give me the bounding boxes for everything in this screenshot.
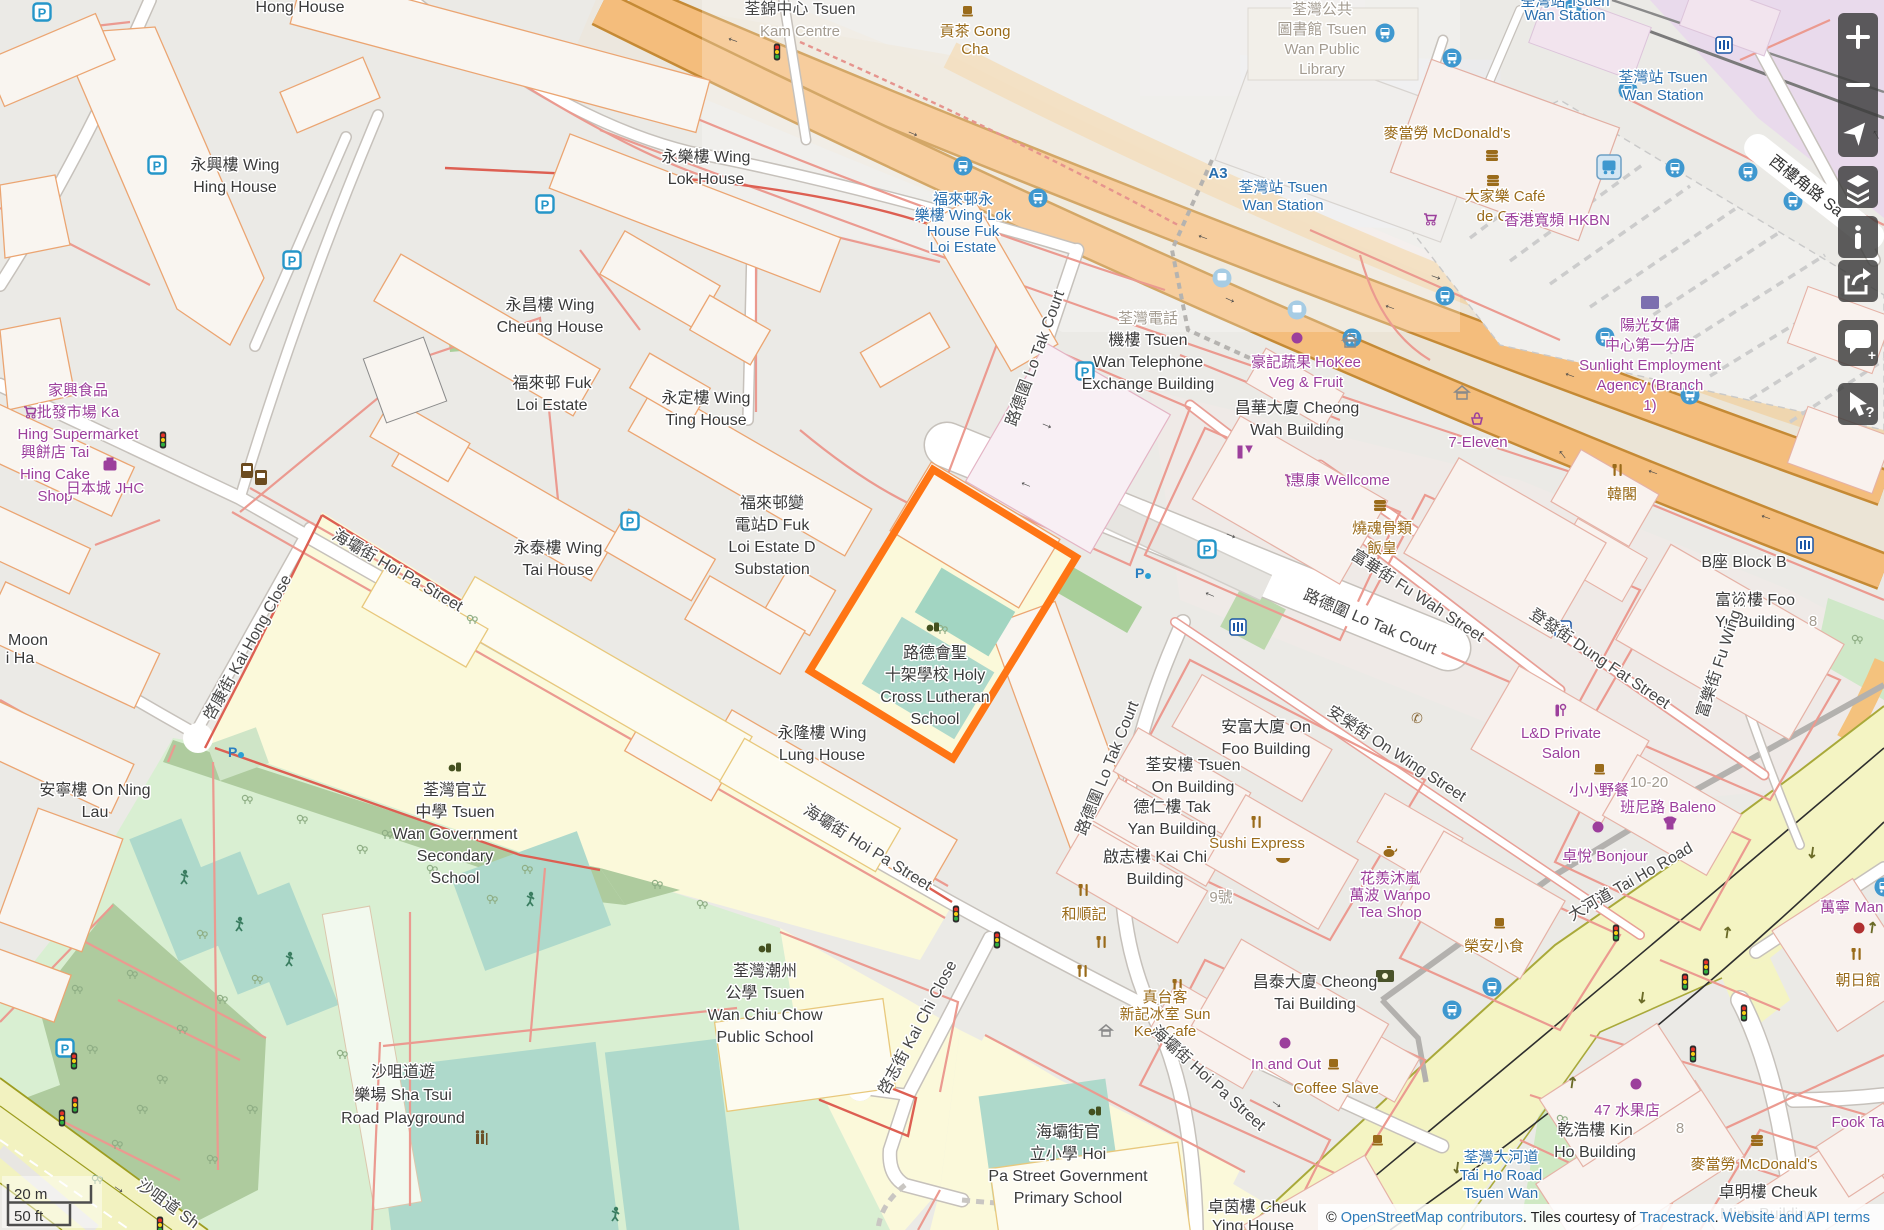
- svg-text:Pa Street Government: Pa Street Government: [988, 1168, 1148, 1185]
- svg-text:Tai Ho Road: Tai Ho Road: [1460, 1167, 1543, 1184]
- svg-text:House Fuk: House Fuk: [927, 223, 1000, 240]
- svg-text:School: School: [911, 711, 960, 728]
- svg-text:Lau: Lau: [82, 804, 109, 821]
- svg-text:Wah Building: Wah Building: [1250, 422, 1344, 439]
- svg-text:樂樓 Wing Lok: 樂樓 Wing Lok: [915, 207, 1012, 224]
- svg-text:陽光女傭: 陽光女傭: [1620, 316, 1680, 334]
- svg-text:萬波 Wanpo: 萬波 Wanpo: [1349, 887, 1430, 904]
- svg-text:乾浩樓 Kin: 乾浩樓 Kin: [1557, 1121, 1633, 1139]
- svg-text:小小野餐: 小小野餐: [1569, 782, 1629, 799]
- svg-text:花羨沐嵐: 花羨沐嵐: [1360, 870, 1420, 887]
- svg-text:Exchange Building: Exchange Building: [1082, 376, 1215, 393]
- svg-text:立小學 Hoi: 立小學 Hoi: [1030, 1145, 1106, 1163]
- svg-text:L&D Private: L&D Private: [1521, 725, 1601, 742]
- svg-text:福來邨 Fuk: 福來邨 Fuk: [512, 374, 592, 392]
- svg-text:永昌樓 Wing: 永昌樓 Wing: [506, 296, 595, 314]
- svg-text:興餅店 Tai: 興餅店 Tai: [21, 444, 89, 461]
- svg-text:Wan Government: Wan Government: [393, 826, 518, 843]
- svg-text:昌華大廈 Cheong: 昌華大廈 Cheong: [1235, 399, 1360, 417]
- svg-text:P: P: [228, 744, 237, 760]
- svg-text:Tai House: Tai House: [522, 562, 593, 579]
- svg-text:荃灣潮州: 荃灣潮州: [733, 962, 797, 980]
- svg-text:Building: Building: [1127, 871, 1184, 888]
- svg-text:Hong House: Hong House: [256, 0, 345, 16]
- svg-text:燒魂骨類: 燒魂骨類: [1352, 520, 1412, 537]
- svg-text:豪記蔬果 HoKee: 豪記蔬果 HoKee: [1251, 353, 1361, 371]
- svg-text:Moon: Moon: [8, 632, 48, 649]
- svg-text:Tea Shop: Tea Shop: [1358, 904, 1421, 921]
- svg-text:路德會聖: 路德會聖: [903, 644, 967, 662]
- svg-text:+: +: [1868, 347, 1876, 363]
- svg-text:Wan Station: Wan Station: [1242, 197, 1323, 214]
- svg-text:荃錦中心 Tsuen: 荃錦中心 Tsuen: [744, 0, 855, 18]
- svg-text:B座 Block B: B座 Block B: [1701, 553, 1786, 571]
- svg-text:Hing Supermarket: Hing Supermarket: [18, 426, 140, 443]
- svg-text:Secondary: Secondary: [417, 848, 494, 865]
- svg-text:電站D Fuk: 電站D Fuk: [735, 516, 811, 534]
- svg-text:Coffee Slave: Coffee Slave: [1293, 1080, 1379, 1097]
- svg-text:富裕樓 Foo: 富裕樓 Foo: [1715, 591, 1795, 609]
- svg-text:On Building: On Building: [1152, 779, 1235, 796]
- svg-text:啟志樓 Kai Chi: 啟志樓 Kai Chi: [1103, 848, 1207, 866]
- svg-text:永樂樓 Wing: 永樂樓 Wing: [662, 148, 751, 166]
- svg-text:Hing House: Hing House: [193, 179, 277, 196]
- svg-text:?: ?: [1865, 404, 1874, 421]
- svg-text:新記冰室 Sun: 新記冰室 Sun: [1120, 1006, 1211, 1023]
- svg-text:昌泰大廈 Cheong: 昌泰大廈 Cheong: [1253, 973, 1378, 991]
- svg-text:In and Out: In and Out: [1251, 1056, 1322, 1073]
- svg-text:Cross Lutheran: Cross Lutheran: [880, 689, 989, 706]
- svg-text:P: P: [1135, 565, 1144, 581]
- svg-text:i Ha: i Ha: [6, 650, 35, 667]
- svg-text:Wan Telephone: Wan Telephone: [1093, 354, 1203, 371]
- svg-text:Ho Building: Ho Building: [1554, 1144, 1636, 1161]
- svg-text:朝日館: 朝日館: [1835, 972, 1880, 989]
- svg-text:真台客: 真台客: [1142, 988, 1187, 1006]
- svg-text:Tsuen Wan: Tsuen Wan: [1464, 1185, 1538, 1202]
- svg-text:Salon: Salon: [1542, 745, 1580, 762]
- svg-text:麥當勞 McDonald's: 麥當勞 McDonald's: [1383, 125, 1510, 142]
- svg-text:惠康 Wellcome: 惠康 Wellcome: [1290, 472, 1390, 489]
- svg-text:永定樓 Wing: 永定樓 Wing: [662, 389, 751, 407]
- svg-text:公學 Tsuen: 公學 Tsuen: [725, 984, 804, 1002]
- svg-text:圖書館 Tsuen: 圖書館 Tsuen: [1277, 21, 1366, 38]
- svg-text:Tai Building: Tai Building: [1274, 996, 1356, 1013]
- svg-text:Ying House: Ying House: [1212, 1218, 1294, 1230]
- svg-text:萬寧 Mann: 萬寧 Mann: [1820, 899, 1884, 916]
- svg-text:Substation: Substation: [734, 561, 810, 578]
- svg-text:Library: Library: [1299, 61, 1345, 78]
- svg-text:和順記: 和順記: [1061, 906, 1106, 923]
- svg-text:Veg & Fruit: Veg & Fruit: [1269, 374, 1344, 391]
- svg-text:中學 Tsuen: 中學 Tsuen: [415, 803, 494, 821]
- svg-text:20 m: 20 m: [14, 1186, 47, 1203]
- svg-text:8: 8: [1809, 613, 1817, 630]
- svg-text:榮安小食: 榮安小食: [1464, 938, 1524, 955]
- svg-text:十架學校 Holy: 十架學校 Holy: [885, 666, 985, 684]
- svg-text:香港寬頻 HKBN: 香港寬頻 HKBN: [1504, 211, 1610, 229]
- svg-text:50 ft: 50 ft: [14, 1208, 44, 1225]
- svg-text:安富大廈 On: 安富大廈 On: [1221, 718, 1311, 736]
- svg-text:47 水果店: 47 水果店: [1594, 1102, 1660, 1119]
- svg-text:Cha: Cha: [961, 41, 989, 58]
- svg-text:9號: 9號: [1209, 889, 1232, 906]
- svg-text:Road Playground: Road Playground: [341, 1110, 465, 1127]
- svg-text:永興樓 Wing: 永興樓 Wing: [191, 156, 280, 174]
- svg-text:班尼路 Baleno: 班尼路 Baleno: [1620, 799, 1716, 816]
- svg-text:Foo Building: Foo Building: [1222, 741, 1311, 758]
- svg-text:Kam Centre: Kam Centre: [760, 23, 840, 40]
- svg-text:卓明樓 Cheuk: 卓明樓 Cheuk: [1719, 1183, 1819, 1201]
- svg-text:荃安樓 Tsuen: 荃安樓 Tsuen: [1145, 756, 1240, 774]
- svg-text:飯皇: 飯皇: [1367, 540, 1397, 557]
- svg-text:Wan Public: Wan Public: [1284, 41, 1360, 58]
- svg-text:8: 8: [1676, 1120, 1684, 1137]
- svg-text:✆: ✆: [1411, 710, 1423, 726]
- svg-text:Wan Station: Wan Station: [1622, 87, 1703, 104]
- svg-text:永隆樓 Wing: 永隆樓 Wing: [778, 724, 867, 742]
- svg-text:Wan Station: Wan Station: [1524, 7, 1605, 24]
- svg-text:Yan Building: Yan Building: [1128, 821, 1217, 838]
- svg-text:Sushi Express: Sushi Express: [1209, 835, 1305, 852]
- svg-text:大家樂 Café: 大家樂 Café: [1465, 188, 1546, 205]
- svg-text:安寧樓 On Ning: 安寧樓 On Ning: [39, 781, 150, 799]
- svg-text:Loi Estate D: Loi Estate D: [728, 539, 815, 556]
- svg-text:Lok House: Lok House: [668, 171, 745, 188]
- svg-text:Wan Chiu Chow: Wan Chiu Chow: [707, 1007, 822, 1024]
- svg-text:荃灣站 Tsuen: 荃灣站 Tsuen: [1238, 179, 1327, 196]
- svg-text:Public School: Public School: [717, 1029, 814, 1046]
- svg-text:Agency (Branch: Agency (Branch: [1597, 377, 1704, 394]
- svg-text:Primary School: Primary School: [1014, 1190, 1122, 1207]
- svg-text:Fook Ta: Fook Ta: [1831, 1114, 1884, 1131]
- svg-text:10-20: 10-20: [1630, 774, 1668, 791]
- svg-text:Cheung House: Cheung House: [497, 319, 604, 336]
- svg-text:荃灣電話: 荃灣電話: [1118, 310, 1178, 327]
- svg-text:德仁樓 Tak: 德仁樓 Tak: [1133, 798, 1211, 816]
- svg-text:卓茵樓 Cheuk: 卓茵樓 Cheuk: [1208, 1198, 1308, 1216]
- svg-text:貢茶 Gong: 貢茶 Gong: [940, 23, 1011, 40]
- svg-text:樂場 Sha Tsui: 樂場 Sha Tsui: [354, 1086, 452, 1104]
- svg-text:Loi Estate: Loi Estate: [930, 239, 997, 256]
- svg-text:麥當勞 McDonald's: 麥當勞 McDonald's: [1690, 1156, 1817, 1173]
- svg-text:荃灣站 Tsuen: 荃灣站 Tsuen: [1618, 69, 1707, 86]
- svg-text:Lung House: Lung House: [779, 747, 865, 764]
- svg-text:7-Eleven: 7-Eleven: [1448, 434, 1507, 451]
- svg-text:卓悅 Bonjour: 卓悅 Bonjour: [1562, 848, 1648, 865]
- svg-text:Sunlight Employment: Sunlight Employment: [1579, 357, 1722, 374]
- svg-text:永泰樓 Wing: 永泰樓 Wing: [514, 539, 603, 557]
- svg-text:1): 1): [1643, 397, 1656, 414]
- svg-text:家興食品: 家興食品: [48, 382, 108, 399]
- svg-text:海壩街官: 海壩街官: [1036, 1123, 1100, 1141]
- svg-text:© OpenStreetMap contributors.: © OpenStreetMap contributors. Tiles cour…: [1326, 1210, 1870, 1226]
- svg-text:A3: A3: [1208, 165, 1227, 182]
- svg-text:荃灣公共: 荃灣公共: [1292, 1, 1352, 18]
- svg-text:福來邨永: 福來邨永: [933, 191, 993, 208]
- svg-text:School: School: [431, 870, 480, 887]
- svg-text:機樓 Tsuen: 機樓 Tsuen: [1108, 331, 1187, 349]
- svg-text:荃灣大河道: 荃灣大河道: [1463, 1149, 1538, 1166]
- svg-text:韓閣: 韓閣: [1607, 486, 1637, 503]
- svg-text:中心第一分店: 中心第一分店: [1605, 336, 1695, 354]
- svg-text:Loi Estate: Loi Estate: [516, 397, 587, 414]
- svg-text:日本城 JHC: 日本城 JHC: [66, 480, 145, 497]
- svg-text:Ting House: Ting House: [665, 412, 746, 429]
- svg-text:福來邨變: 福來邨變: [740, 494, 804, 512]
- svg-text:批發市場 Ka: 批發市場 Ka: [37, 404, 120, 421]
- svg-text:荃灣官立: 荃灣官立: [423, 781, 487, 799]
- svg-text:沙咀道遊: 沙咀道遊: [371, 1063, 435, 1081]
